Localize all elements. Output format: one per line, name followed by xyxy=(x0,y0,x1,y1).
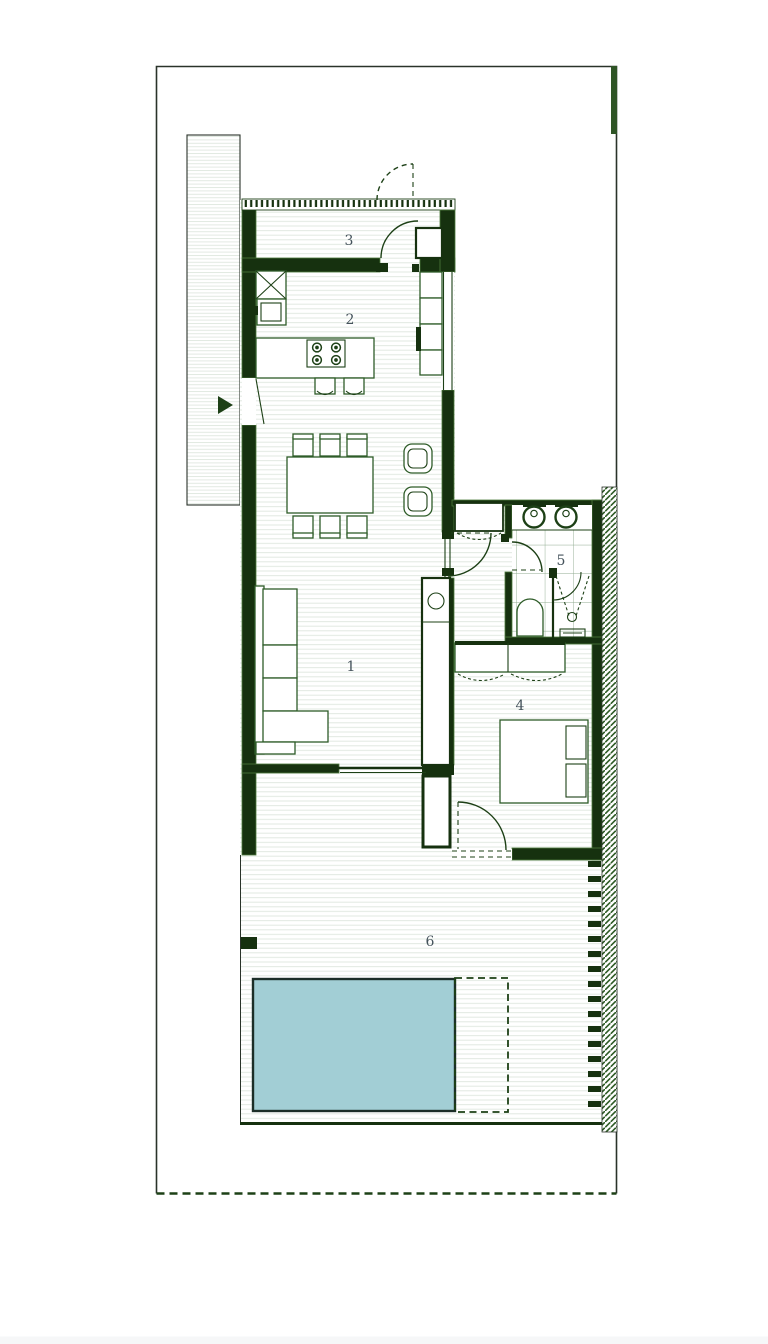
hall-closet xyxy=(455,503,503,531)
room-label-entry: 3 xyxy=(345,233,354,249)
partition-hinge-block-2 xyxy=(442,568,454,576)
room-label-living: 1 xyxy=(347,659,356,675)
bathroom-door-hinge xyxy=(501,534,509,542)
swimming-pool xyxy=(253,979,455,1111)
hall-door-hinge xyxy=(444,528,451,536)
room-label-terrace: 6 xyxy=(426,934,435,950)
entry-inner-door-leaf xyxy=(376,263,388,272)
dining-table xyxy=(287,457,373,513)
kitchen-tall-cabinets xyxy=(416,272,442,375)
kitchen-sink-tap xyxy=(250,306,258,315)
driveway xyxy=(187,135,240,505)
wall-left-upper xyxy=(242,200,256,378)
room-label-bathroom: 5 xyxy=(557,553,566,569)
wall-east-middle xyxy=(442,390,454,532)
toilet xyxy=(517,599,543,636)
dining-chairs-top xyxy=(293,434,367,456)
boundary-thick-segment xyxy=(611,66,617,134)
floor-plan-page: 1 2 3 4 5 6 xyxy=(0,0,768,1344)
fireplace-column xyxy=(422,578,450,765)
wall-left-lower xyxy=(242,425,256,855)
cabinet-handle-block xyxy=(416,327,421,351)
entry-closet xyxy=(416,228,442,258)
room-label-kitchen: 2 xyxy=(346,312,355,328)
room-label-bedroom: 4 xyxy=(516,698,525,714)
entry-inner-door-hinge xyxy=(412,264,419,272)
driveway-paving xyxy=(187,135,240,505)
wall-entry-south-left xyxy=(242,258,380,272)
wall-bedroom-south xyxy=(512,848,602,860)
wall-east-outer xyxy=(592,500,602,860)
wall-hall-bath-lower xyxy=(505,572,512,637)
terrace-wall-stub xyxy=(240,937,257,949)
floor-plan-drawing: 1 2 3 4 5 6 xyxy=(0,0,768,1344)
wall-living-south xyxy=(242,764,339,773)
page-bottom-strip xyxy=(0,1337,768,1344)
entry-fence-band xyxy=(242,199,455,210)
sofa-chaise xyxy=(263,711,328,742)
neighbour-hatch-strip xyxy=(602,487,617,1132)
gate-door-swing xyxy=(377,164,413,200)
bed xyxy=(500,720,588,803)
entry-door-opening xyxy=(242,378,256,425)
outdoor-storage-block xyxy=(423,776,450,847)
dining-chairs-bottom xyxy=(293,516,367,538)
wall-hall-bath-upper xyxy=(505,505,512,538)
